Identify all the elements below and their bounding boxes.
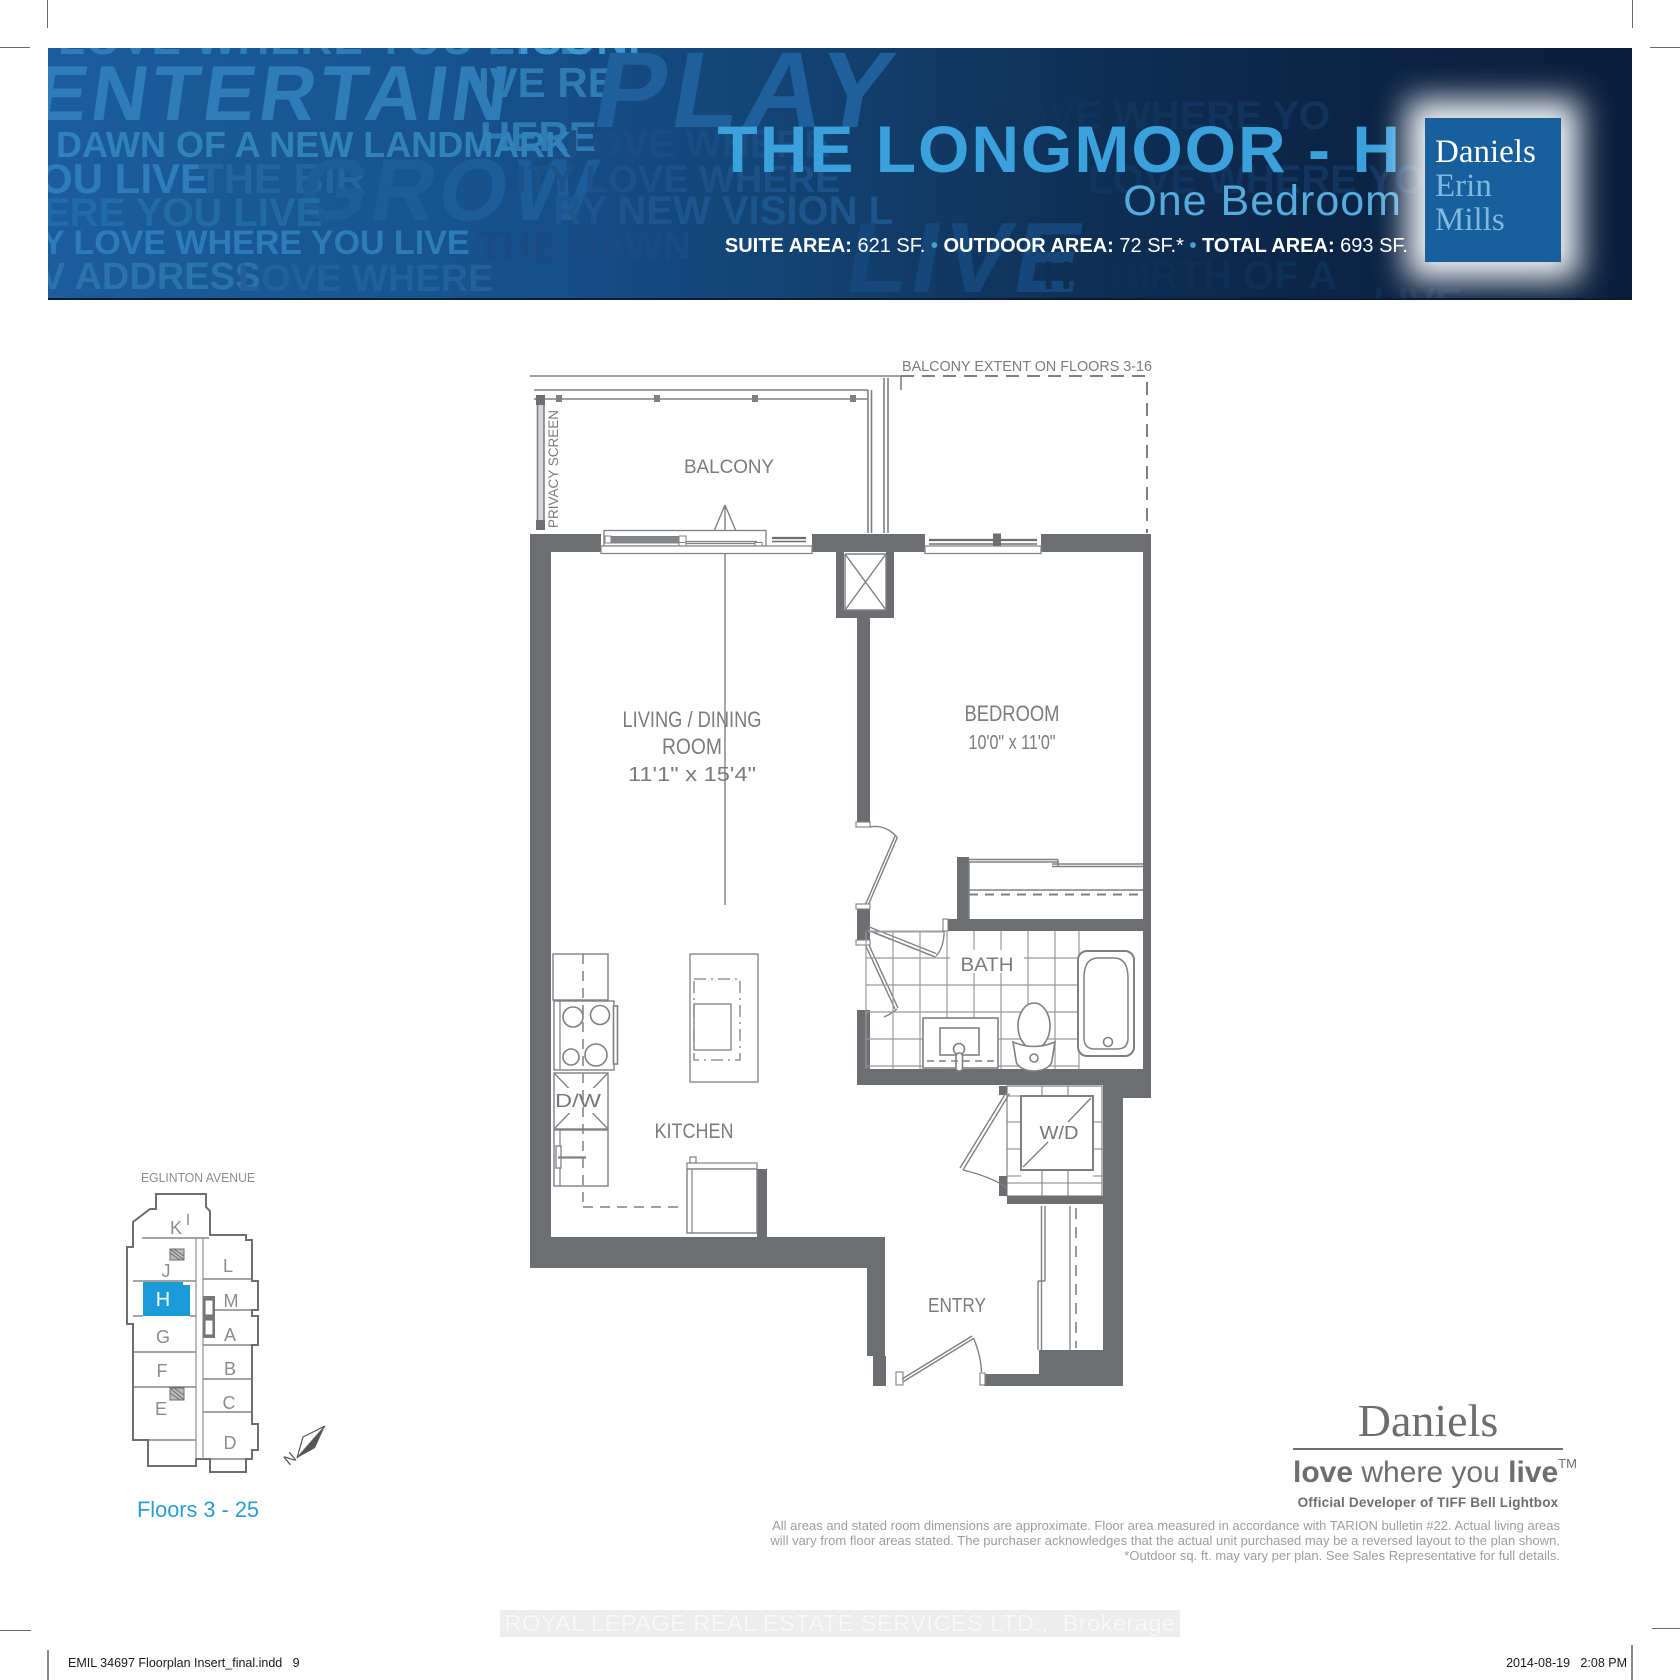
svg-text:BALCONY: BALCONY	[684, 457, 774, 478]
svg-text:K: K	[170, 1218, 182, 1238]
svg-text:E: E	[155, 1399, 167, 1419]
svg-text:L: L	[223, 1256, 233, 1276]
svg-text:M: M	[224, 1291, 239, 1311]
svg-text:G: G	[156, 1327, 170, 1347]
svg-text:A: A	[224, 1325, 236, 1345]
svg-text:Floors 3 - 25: Floors 3 - 25	[137, 1497, 259, 1522]
svg-text:ROOM: ROOM	[662, 734, 722, 759]
svg-text:BEDROOM: BEDROOM	[965, 701, 1060, 726]
svg-text:N: N	[281, 1449, 300, 1469]
svg-text:KITCHEN: KITCHEN	[655, 1120, 734, 1143]
svg-text:J: J	[162, 1261, 171, 1281]
svg-text:F: F	[157, 1361, 168, 1381]
svg-text:B: B	[224, 1359, 236, 1379]
svg-text:11'1" x 15'4": 11'1" x 15'4"	[628, 764, 756, 786]
svg-text:BALCONY EXTENT ON FLOORS 3-16: BALCONY EXTENT ON FLOORS 3-16	[902, 358, 1152, 375]
svg-text:EGLINTON AVENUE: EGLINTON AVENUE	[141, 1170, 255, 1185]
svg-text:C: C	[223, 1393, 236, 1413]
svg-text:PRIVACY SCREEN: PRIVACY SCREEN	[546, 410, 561, 528]
svg-text:BATH: BATH	[961, 955, 1014, 976]
svg-text:H: H	[156, 1289, 170, 1311]
svg-text:ENTRY: ENTRY	[928, 1295, 986, 1317]
svg-text:10'0" x 11'0": 10'0" x 11'0"	[969, 732, 1056, 754]
svg-text:W/D: W/D	[1040, 1122, 1079, 1143]
svg-text:LIVING / DINING: LIVING / DINING	[623, 707, 762, 732]
svg-text:D/W: D/W	[555, 1090, 602, 1111]
svg-text:D: D	[224, 1433, 237, 1453]
svg-text:I: I	[186, 1212, 190, 1229]
